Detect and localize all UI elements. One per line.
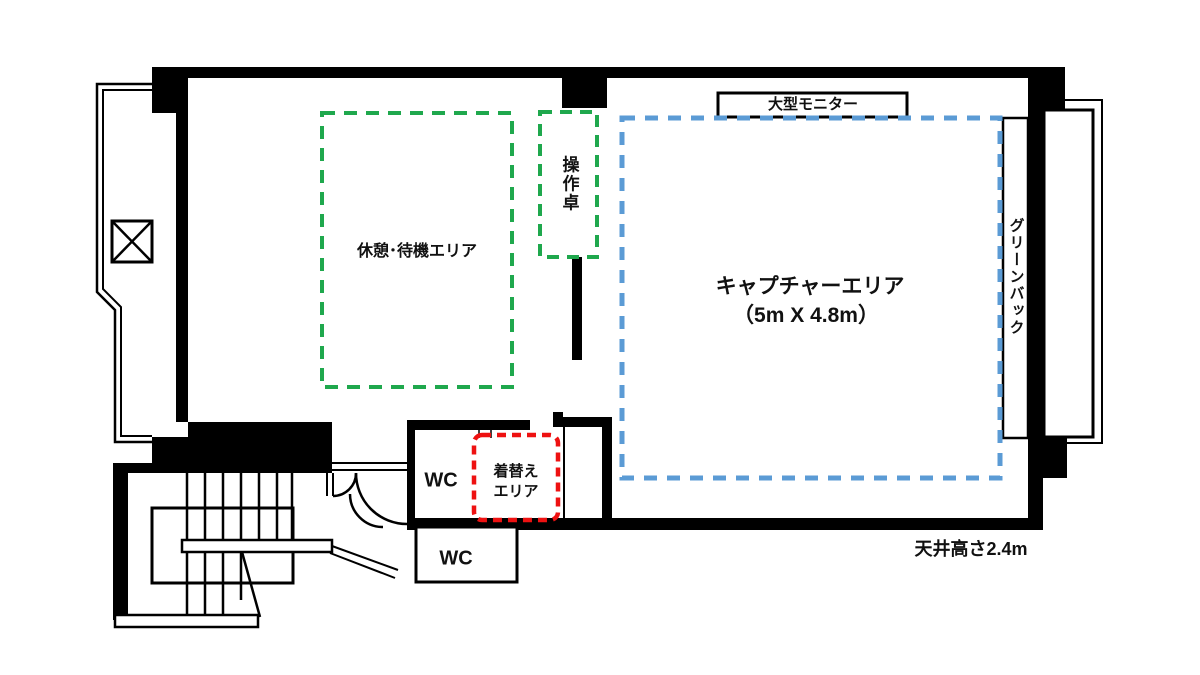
ceiling-height-label: 天井高さ2.4m	[914, 537, 1027, 561]
floor-plan-drawing	[0, 0, 1200, 675]
rest-area-label: 休憩･待機エリア	[357, 241, 477, 263]
wall-entry-top	[553, 417, 612, 427]
wall-stair-left	[113, 463, 128, 620]
stair-mid-rail	[182, 540, 332, 552]
door-jamb	[327, 473, 333, 496]
wall-entry-right	[602, 427, 612, 520]
elevator-shaft	[112, 221, 152, 262]
corridor-diagonal	[330, 546, 398, 578]
door-head-lines	[332, 463, 410, 470]
capture-area-size: （5m X 4.8m）	[733, 302, 879, 330]
console-label: 操作卓	[561, 156, 578, 213]
thin-outlines	[97, 84, 1102, 443]
door-arc-large	[356, 473, 407, 524]
wall-top-stub	[562, 78, 607, 108]
wc-lower-label: WC	[439, 546, 472, 573]
door-arc-lower	[350, 494, 383, 527]
wall-right-upper	[1028, 118, 1043, 437]
monitor-label: 大型モニター	[768, 95, 858, 115]
wc-upper-label: WC	[424, 468, 457, 495]
window-right	[1044, 110, 1093, 437]
floor-plan: 休憩･待機エリア 操作卓 キャプチャーエリア （5m X 4.8m） 大型モニタ…	[0, 0, 1200, 675]
stair-bottom-edge	[115, 615, 258, 627]
greenback-label: グリーンバック	[1009, 218, 1024, 337]
wall-left-block	[188, 422, 332, 473]
capture-area-label: キャプチャーエリア	[716, 273, 905, 301]
wall-wc-left	[407, 430, 415, 518]
staircase	[115, 473, 398, 627]
changing-area-label: 着替え エリア	[493, 462, 538, 503]
door-arc-small	[333, 473, 356, 496]
wall-top	[152, 67, 1065, 78]
wall-left	[176, 78, 188, 422]
partition-console	[572, 257, 582, 360]
wall-wc-top	[407, 420, 530, 430]
wall-entry-notch	[553, 412, 563, 418]
wall-right-block	[1028, 437, 1067, 478]
